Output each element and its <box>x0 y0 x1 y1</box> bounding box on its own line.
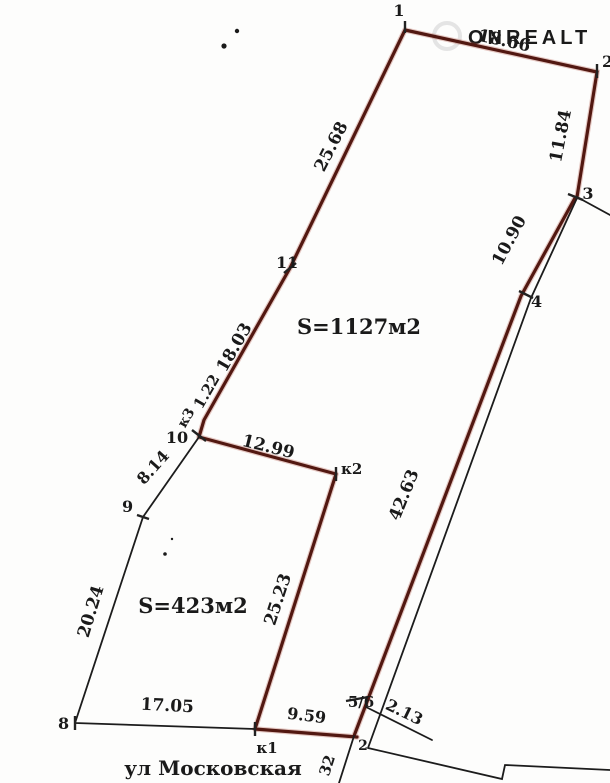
scan-specks <box>163 29 239 556</box>
measurement-2-3: 11.84 <box>546 108 576 164</box>
point-label-bottom: 2 <box>358 738 368 754</box>
cadastral-plan-drawing: ONREALT <box>0 0 610 783</box>
parcel-boundary-main <box>199 30 597 737</box>
measurement-8-k1: 17.05 <box>140 695 194 718</box>
parcel-boundary-glow <box>199 30 597 737</box>
point-labels: 1 2 3 4 5/6 8 9 10 11 к1 к2 к3 2 <box>58 1 610 757</box>
measurement-8-9: 20.24 <box>74 583 109 640</box>
point-label-2: 2 <box>602 52 610 71</box>
speck <box>235 29 239 33</box>
measurement-labels: 18.66 11.84 10.90 42.63 2.13 9.59 17.05 … <box>74 26 576 778</box>
measurement-k3-11: 18.03 <box>213 319 257 375</box>
measurement-4-56: 42.63 <box>385 467 423 524</box>
point-label-k3: к3 <box>175 405 199 430</box>
area-label-large-parcel: S=1127м2 <box>297 314 421 339</box>
speck <box>163 552 167 556</box>
point-label-k1: к1 <box>256 739 277 757</box>
point-label-1: 1 <box>393 1 404 20</box>
measurement-3-4: 10.90 <box>488 212 531 269</box>
speck <box>171 538 173 540</box>
measurement-56-ext: 2.13 <box>383 695 426 729</box>
point-label-8: 8 <box>58 714 69 733</box>
area-label-small-parcel: S=423м2 <box>138 593 247 618</box>
measurement-k1-56: 9.59 <box>286 704 327 728</box>
point-label-k2: к2 <box>341 460 362 478</box>
point-label-3: 3 <box>582 184 593 203</box>
speck <box>221 43 226 48</box>
point-label-5-6: 5/6 <box>348 693 374 711</box>
measurement-bottom-partial: 32 <box>315 753 339 778</box>
point-label-9: 9 <box>122 497 133 516</box>
survey-plan-page: ONREALT <box>0 0 610 783</box>
point-label-4: 4 <box>531 292 542 311</box>
street-name: ул Московская <box>124 756 302 780</box>
point-label-11: 11 <box>276 253 298 272</box>
point-label-10: 10 <box>166 428 188 447</box>
